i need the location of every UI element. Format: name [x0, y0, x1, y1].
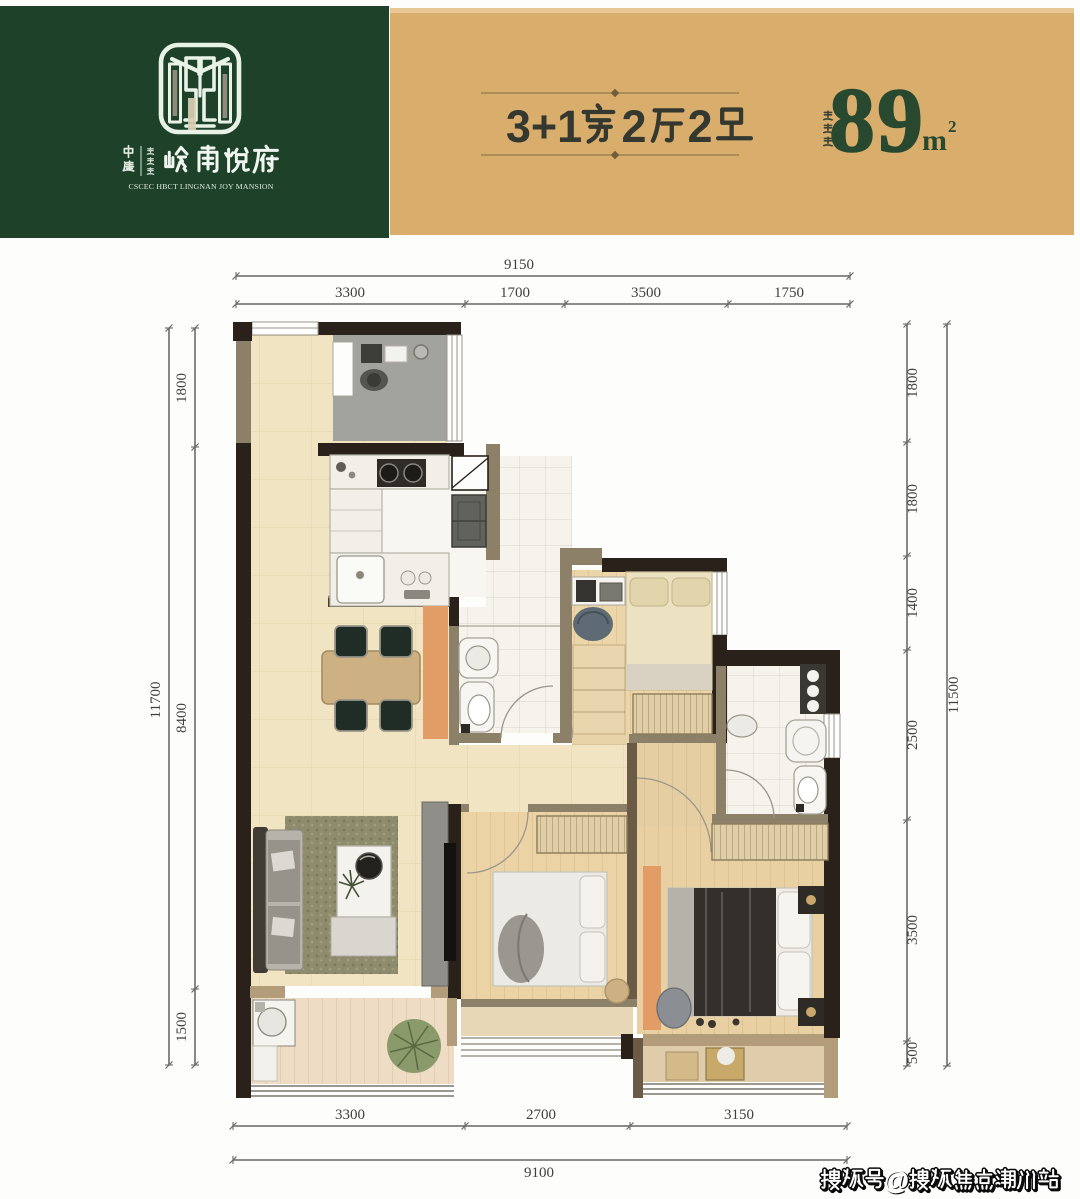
svg-text:1800: 1800: [174, 373, 190, 403]
svg-text:11700: 11700: [148, 682, 164, 719]
svg-text:11500: 11500: [946, 677, 962, 714]
svg-text:9100: 9100: [524, 1165, 554, 1181]
svg-text:1500: 1500: [174, 1012, 190, 1042]
svg-text:2: 2: [687, 101, 712, 152]
svg-text:@: @: [884, 1165, 909, 1195]
svg-text:9150: 9150: [504, 257, 534, 273]
svg-text:2: 2: [948, 117, 957, 136]
svg-text:89: 89: [829, 69, 925, 171]
svg-text:1700: 1700: [500, 285, 530, 301]
svg-text:3+1: 3+1: [506, 101, 582, 152]
svg-text:2700: 2700: [526, 1107, 556, 1123]
svg-text:500: 500: [905, 1042, 921, 1065]
svg-text:2500: 2500: [905, 720, 921, 750]
svg-text:1400: 1400: [905, 588, 921, 618]
svg-text:2: 2: [621, 101, 646, 152]
svg-text:3300: 3300: [335, 285, 365, 301]
svg-text:CSCEC HBCT LINGNAN JOY MANSION: CSCEC HBCT LINGNAN JOY MANSION: [128, 182, 273, 191]
svg-text:3300: 3300: [335, 1107, 365, 1123]
svg-text:8400: 8400: [174, 703, 190, 733]
svg-text:m: m: [922, 124, 947, 157]
svg-text:3500: 3500: [905, 915, 921, 945]
svg-text:3500: 3500: [631, 285, 661, 301]
svg-text:3150: 3150: [724, 1107, 754, 1123]
svg-text:1750: 1750: [774, 285, 804, 301]
svg-text:1800: 1800: [905, 484, 921, 514]
svg-text:1800: 1800: [905, 368, 921, 398]
